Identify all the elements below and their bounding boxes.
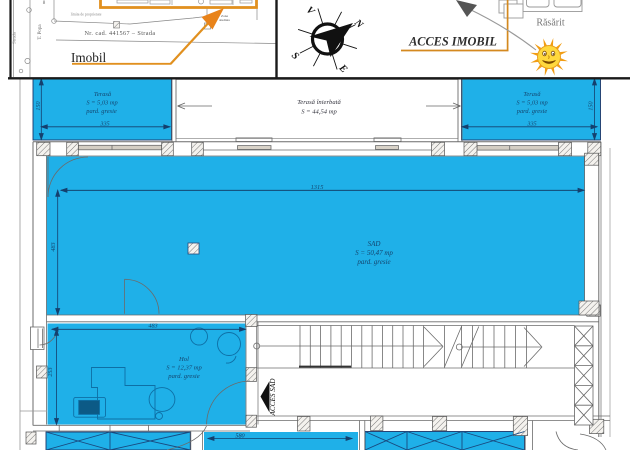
svg-text:S = 5,03 mp: S = 5,03 mp [516, 99, 547, 106]
svg-text:Nr. cad. 441567 – Strada: Nr. cad. 441567 – Strada [84, 30, 155, 37]
svg-text:150: 150 [588, 100, 595, 110]
svg-text:Răsărit: Răsărit [536, 18, 565, 29]
svg-text:S = 12,37 mp: S = 12,37 mp [166, 365, 202, 372]
svg-text:S = 5,03 mp: S = 5,03 mp [86, 99, 117, 106]
svg-text:Terasă: Terasă [523, 91, 540, 98]
svg-text:pard. gresie: pard. gresie [516, 108, 548, 115]
svg-text:Hol: Hol [178, 356, 189, 363]
svg-text:limita de proprietate: limita de proprietate [71, 13, 102, 17]
svg-text:S = 44,54 mp: S = 44,54 mp [301, 109, 337, 116]
svg-text:1315: 1315 [311, 184, 324, 191]
svg-text:483: 483 [148, 323, 157, 330]
svg-text:pard. gresie: pard. gresie [167, 373, 199, 380]
svg-text:studiata: studiata [219, 18, 230, 22]
svg-text:SAD: SAD [368, 240, 381, 248]
svg-text:pard. gresie: pard. gresie [85, 108, 117, 115]
svg-text:335: 335 [99, 120, 109, 127]
svg-text:Terasă înierbată: Terasă înierbată [297, 99, 341, 106]
svg-text:ACCES IMOBIL: ACCES IMOBIL [408, 35, 497, 49]
svg-text:253: 253 [47, 367, 54, 376]
svg-text:483: 483 [50, 242, 57, 251]
svg-text:580: 580 [235, 432, 245, 439]
svg-text:pard. gresie: pard. gresie [356, 258, 390, 266]
svg-text:T. Popa: T. Popa [38, 24, 43, 40]
svg-text:335: 335 [526, 120, 536, 127]
svg-text:150: 150 [35, 100, 42, 110]
svg-text:Strada: Strada [12, 32, 17, 44]
svg-text:Imobil: Imobil [71, 50, 107, 65]
svg-text:ACCES SAD: ACCES SAD [269, 378, 277, 417]
svg-text:S = 50,47 mp: S = 50,47 mp [355, 249, 393, 257]
svg-text:Terasă: Terasă [94, 91, 111, 98]
